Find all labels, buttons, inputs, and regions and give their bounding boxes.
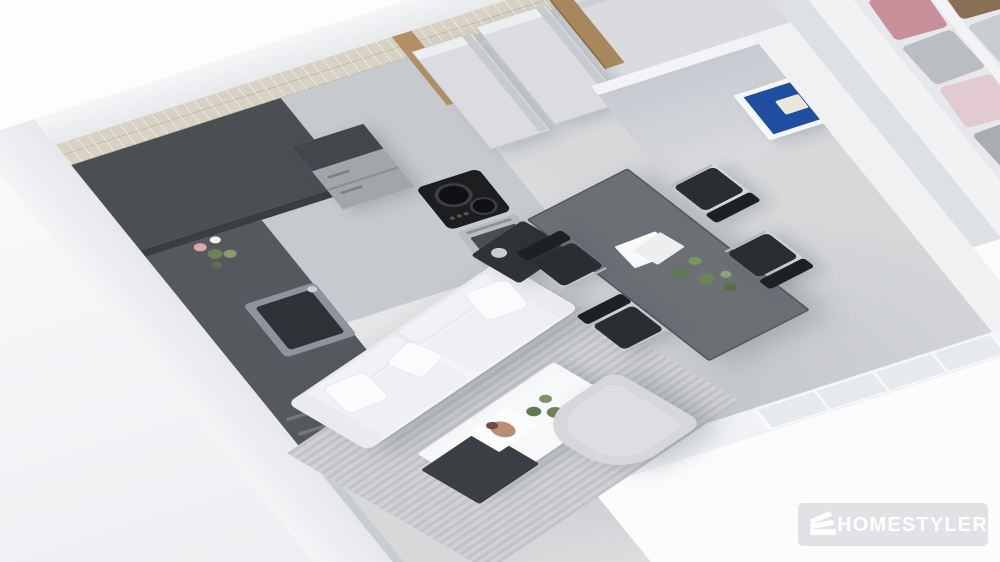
homestyler-watermark-text: HOMESTYLER: [837, 515, 988, 535]
render-canvas: HOMESTYLER: [0, 0, 1000, 562]
homestyler-logo-icon: [808, 511, 829, 538]
homestyler-watermark: HOMESTYLER: [798, 503, 988, 546]
refrigerator-handle-bottom: [340, 185, 363, 194]
side-table-decor: [488, 246, 511, 260]
cooktop-knobs: [448, 211, 470, 221]
refrigerator-handle-top: [327, 169, 350, 178]
